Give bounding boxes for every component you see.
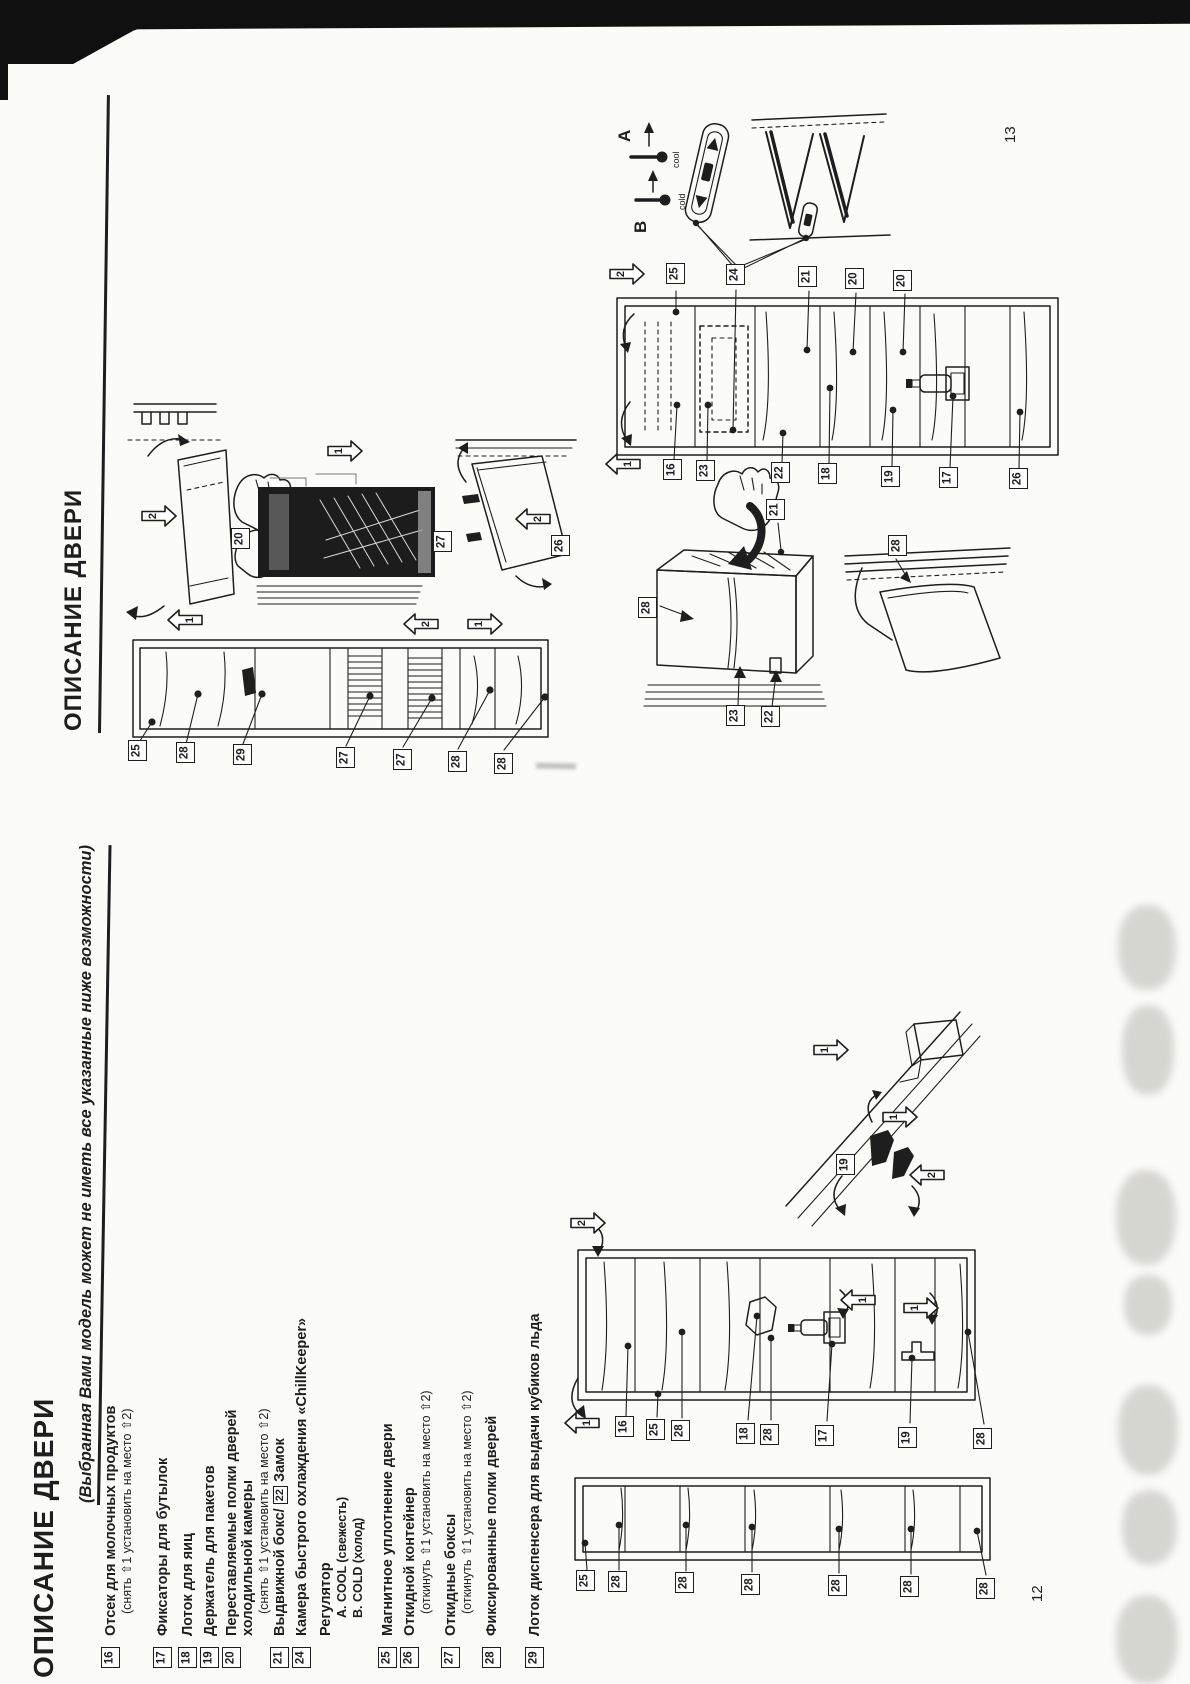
direction-arrow-2: 2	[140, 502, 178, 530]
page12-subtitle: (Выбранная Вами модель может не иметь вс…	[77, 845, 96, 1503]
callout-number: 28	[498, 757, 510, 770]
arrow-number: 1	[184, 617, 196, 623]
list-item-title: Переставляемые полки дверей	[224, 1409, 240, 1637]
callout-number: 28	[675, 1424, 687, 1437]
callout-number: 25	[580, 1574, 592, 1587]
list-item-title: Лоток для яиц	[180, 1533, 196, 1636]
direction-arrow-2: 2	[514, 505, 552, 533]
callout-number: 19	[902, 1431, 914, 1444]
scanned-manual-page: ОПИСАНИЕ ДВЕРИ 13	[0, 0, 1190, 1684]
callout-label: 23	[726, 705, 745, 726]
regulator-letter-b: B	[631, 221, 650, 233]
callout-number: 21	[802, 270, 814, 283]
list-item: Лоток для яиц	[180, 1533, 196, 1636]
list-item: Держатель для пакетов	[202, 1465, 218, 1636]
callout-number: 27	[437, 535, 449, 548]
list-item-instructions: (откинуть ⇧1 установить на место ⇧2)	[459, 1390, 475, 1614]
callout-label: 28	[973, 1428, 992, 1449]
callout-number: 22	[775, 466, 787, 479]
list-item-title: Фиксированные полки дверей	[484, 1416, 500, 1636]
list-item-option: B. COLD (холод)	[350, 1497, 366, 1618]
callout-number: 19	[885, 470, 897, 483]
callout-label: 25	[646, 1419, 665, 1440]
callout-number: 20	[897, 274, 909, 287]
list-item-title-line2: холодильной камеры	[240, 1409, 256, 1637]
callout-label: 28	[448, 751, 467, 772]
callout-number: 17	[157, 1651, 169, 1664]
callout-number: 26	[1013, 472, 1025, 485]
callout-label: 20	[845, 268, 864, 289]
list-item-instructions: (откинуть ⇧1 установить на место ⇧2)	[418, 1390, 434, 1614]
callout-label: 22	[761, 706, 780, 727]
callout-number: 16	[619, 1420, 631, 1433]
callout-label: 28	[608, 1571, 627, 1592]
direction-arrow-1: 1	[466, 610, 504, 638]
direction-arrow-2: 2	[908, 1161, 946, 1189]
callout-number: 28	[745, 1578, 757, 1591]
arrow-number: 1	[333, 448, 345, 454]
callout-number: 16	[667, 463, 679, 476]
list-item: Фиксированные полки дверей	[484, 1416, 500, 1636]
callout-number: 24	[730, 268, 742, 281]
callout-label: 16	[101, 1647, 120, 1668]
arrow-number: 1	[888, 1114, 900, 1120]
callout-label: 28	[675, 1572, 694, 1593]
direction-arrow-1: 1	[604, 450, 642, 478]
list-item: Выдвижной бокс/ 22 Замок	[272, 1438, 288, 1636]
list-item-title: Лоток диспенсера для выдачи кубиков льда	[527, 1314, 543, 1636]
arrow-number: 1	[857, 1297, 869, 1303]
callout-label: 24	[726, 264, 745, 285]
direction-arrow-1: 1	[812, 1036, 850, 1064]
callout-number: 20	[849, 272, 861, 285]
callout-label: 16	[615, 1416, 634, 1437]
callout-number: 17	[943, 471, 955, 484]
callout-number: 21	[274, 1651, 286, 1664]
callout-number: 29	[237, 748, 249, 761]
regulator-cool-label: cool	[671, 151, 681, 168]
binding-shadow	[1116, 1170, 1176, 1265]
callout-label: 28	[828, 1575, 847, 1596]
callout-label: 17	[153, 1647, 172, 1668]
list-item-title: Откидные боксы	[443, 1390, 459, 1636]
arrow-number: 2	[532, 516, 544, 522]
callout-label: 20	[222, 1647, 241, 1668]
binding-shadow	[1122, 1490, 1177, 1565]
callout-number: 28	[892, 539, 904, 552]
list-item: Отсек для молочных продуктов(снять ⇧1 ус…	[103, 1406, 135, 1636]
callout-label: 27	[441, 1647, 460, 1668]
list-item-title: Фиксаторы для бутылок	[155, 1458, 171, 1636]
callout-label: 24	[292, 1647, 311, 1668]
callout-number: 28	[832, 1579, 844, 1592]
callout-number: 26	[404, 1651, 416, 1664]
callout-label: 28	[671, 1420, 690, 1441]
page13-title: ОПИСАНИЕ ДВЕРИ	[60, 489, 88, 731]
callout-label: 28	[888, 535, 907, 556]
callout-label: 28	[494, 753, 513, 774]
callout-label: 23	[696, 460, 715, 481]
callout-label: 18	[736, 1423, 755, 1444]
callout-number: 17	[819, 1429, 831, 1442]
callout-label: 29	[525, 1647, 544, 1668]
page12-number: 12	[1029, 1585, 1046, 1602]
callout-label: 19	[881, 466, 900, 487]
binding-shadow	[1116, 1595, 1178, 1684]
list-item-instructions: (снять ⇧1 установить на место ⇧2)	[119, 1406, 135, 1614]
callout-label: 21	[798, 266, 817, 287]
callout-number: 28	[679, 1576, 691, 1589]
callout-number: 26	[555, 539, 567, 552]
callout-label: 27	[336, 747, 355, 768]
callout-label: 21	[270, 1647, 289, 1668]
callout-label: 17	[939, 467, 958, 488]
direction-arrow-1: 1	[839, 1286, 877, 1314]
page12-title: ОПИСАНИЕ ДВЕРИ	[28, 1398, 60, 1678]
inline-callout-label: 22	[273, 1486, 288, 1504]
list-item: Откидной контейнер(откинуть ⇧1 установит…	[402, 1390, 434, 1636]
callout-label: 21	[766, 499, 785, 520]
callout-number: 23	[700, 464, 712, 477]
regulator-cold-label: cold	[677, 193, 687, 210]
scan-edge-corner	[0, 0, 215, 64]
list-item-title: Держатель для пакетов	[202, 1465, 218, 1636]
callout-label: 17	[815, 1425, 834, 1446]
binding-shadow	[1124, 1275, 1172, 1335]
list-item-title: Отсек для молочных продуктов	[103, 1406, 119, 1636]
callout-number: 28	[764, 1428, 776, 1441]
callout-number: 28	[977, 1432, 989, 1445]
callout-label: 25	[128, 740, 147, 761]
arrow-number: 1	[622, 461, 634, 467]
arrow-number: 1	[909, 1305, 921, 1311]
callout-number: 20	[235, 532, 247, 545]
callout-label: 19	[200, 1647, 219, 1668]
callout-label: 26	[1009, 468, 1028, 489]
callout-number: 21	[770, 503, 782, 516]
arrow-number: 2	[576, 1220, 588, 1226]
direction-arrow-1: 1	[902, 1294, 940, 1322]
list-item-instructions: (снять ⇧1 установить на место ⇧2)	[256, 1409, 272, 1615]
callout-number: 25	[382, 1651, 394, 1664]
list-item: Откидные боксы(откинуть ⇧1 установить на…	[443, 1390, 475, 1636]
list-item-title: Откидной контейнер	[402, 1390, 418, 1636]
callout-label: 26	[551, 535, 570, 556]
arrow-number: 1	[581, 1420, 593, 1426]
page13-title-rule	[98, 95, 109, 733]
callout-number: 19	[204, 1651, 216, 1664]
list-item-title: Регулятор	[318, 1497, 334, 1636]
callout-label: 20	[231, 528, 250, 549]
arrow-number: 2	[615, 271, 627, 277]
list-item: Лоток диспенсера для выдачи кубиков льда	[527, 1314, 543, 1636]
callout-number: 22	[765, 710, 777, 723]
callout-number: 18	[822, 467, 834, 480]
callout-label: 25	[576, 1570, 595, 1591]
list-item-option: A. COOL (свежесть)	[334, 1497, 350, 1618]
direction-arrow-2: 2	[608, 260, 646, 288]
list-item: Магнитное уплотнение двери	[380, 1423, 396, 1636]
list-item: Фиксаторы для бутылок	[155, 1458, 171, 1636]
callout-label: 28	[176, 742, 195, 763]
callout-label: 20	[893, 270, 912, 291]
list-item: Переставляемые полки дверейхолодильной к…	[224, 1409, 272, 1637]
direction-arrow-1: 1	[166, 606, 204, 634]
direction-arrow-1: 1	[326, 437, 364, 465]
callout-label: 18	[818, 463, 837, 484]
callout-label: 28	[638, 597, 657, 618]
callout-number: 20	[226, 1651, 238, 1664]
callout-label: 18	[178, 1647, 197, 1668]
callout-number: 25	[670, 267, 682, 280]
arrow-number: 2	[420, 621, 432, 627]
arrow-number: 1	[473, 621, 485, 627]
callout-number: 27	[340, 751, 352, 764]
callout-label: 28	[741, 1574, 760, 1595]
callout-label: 19	[898, 1427, 917, 1448]
list-item-title: Магнитное уплотнение двери	[380, 1423, 396, 1636]
callout-label: 28	[900, 1576, 919, 1597]
callout-label: 29	[233, 744, 252, 765]
callout-label: 28	[976, 1578, 995, 1599]
callout-label: 27	[393, 749, 412, 770]
callout-number: 27	[397, 753, 409, 766]
regulator-letter-a: A	[615, 130, 634, 142]
binding-shadow	[1118, 1385, 1178, 1475]
list-item-title: Камера быстрого охлаждения «ChillKeeper»	[294, 1318, 310, 1636]
callout-number: 28	[904, 1580, 916, 1593]
scan-edge-left	[0, 0, 8, 100]
callout-label: 28	[760, 1424, 779, 1445]
diagram-main-door-and-details: A cool B cold	[600, 100, 1080, 740]
callout-label: 26	[400, 1647, 419, 1668]
callout-label: 27	[433, 531, 452, 552]
callout-number: 27	[445, 1651, 457, 1664]
callout-number: 28	[486, 1651, 498, 1664]
callout-label: 25	[378, 1647, 397, 1668]
list-item: Камера быстрого охлаждения «ChillKeeper»	[294, 1318, 310, 1636]
callout-number: 28	[980, 1582, 992, 1595]
callout-number: 18	[182, 1651, 194, 1664]
callout-number: 28	[452, 755, 464, 768]
callout-label: 19	[836, 1154, 855, 1175]
direction-arrow-2: 2	[402, 610, 440, 638]
callout-number: 25	[650, 1423, 662, 1436]
direction-arrow-1: 1	[563, 1409, 601, 1437]
callout-number: 24	[296, 1651, 308, 1664]
binding-shadow	[1118, 905, 1176, 990]
binding-shadow	[1122, 1005, 1174, 1095]
callout-label: 25	[666, 263, 685, 284]
direction-arrow-2: 2	[569, 1209, 607, 1237]
callout-number: 18	[740, 1427, 752, 1440]
callout-label: 16	[663, 459, 682, 480]
callout-number: 16	[105, 1651, 117, 1664]
arrow-number: 2	[147, 513, 159, 519]
list-item: РегуляторA. COOL (свежесть)B. COLD (холо…	[318, 1497, 366, 1636]
callout-number: 29	[529, 1651, 541, 1664]
callout-number: 19	[840, 1158, 852, 1171]
callout-number: 28	[642, 601, 654, 614]
arrow-number: 2	[926, 1172, 938, 1178]
callout-label: 28	[482, 1647, 501, 1668]
callout-label: 22	[771, 462, 790, 483]
list-item-title: Выдвижной бокс/ 22 Замок	[272, 1438, 288, 1636]
direction-arrow-1: 1	[881, 1103, 919, 1131]
callout-number: 23	[730, 709, 742, 722]
callout-number: 28	[612, 1575, 624, 1588]
callout-number: 28	[180, 746, 192, 759]
callout-number: 25	[132, 744, 144, 757]
arrow-number: 1	[819, 1047, 831, 1053]
